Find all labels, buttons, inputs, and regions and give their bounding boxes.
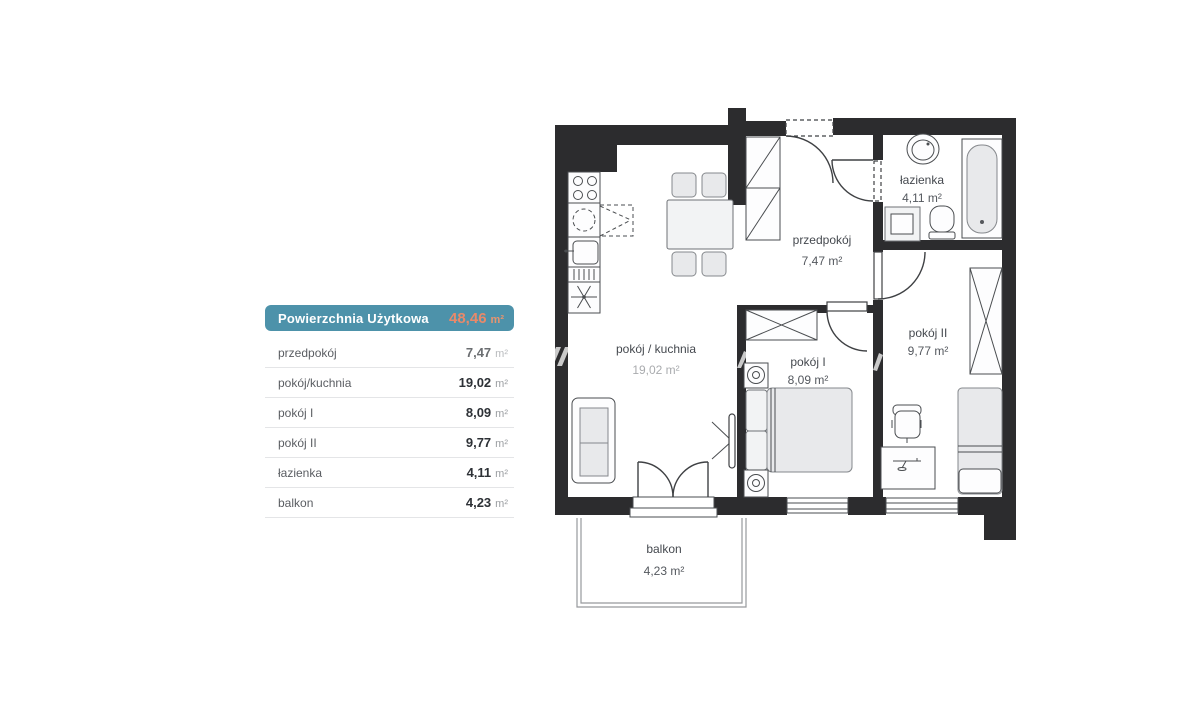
sofa-icon	[572, 398, 615, 483]
chair-icon	[672, 173, 696, 197]
entrance-door	[786, 120, 833, 183]
bathtub-icon	[962, 139, 1002, 238]
room-label: pokój I	[790, 355, 825, 369]
washbasin-icon	[907, 134, 939, 164]
room-area: 4,11 m²	[902, 191, 942, 205]
windows	[630, 497, 958, 517]
sink-icon	[564, 237, 600, 282]
nightstand-icon	[744, 470, 768, 497]
window-room2	[886, 498, 958, 513]
room-area: 9,77 m²	[908, 344, 949, 358]
bathroom	[885, 134, 1002, 241]
pillow	[746, 390, 767, 431]
room-label: łazienka	[900, 173, 944, 187]
room-area: 19,02 m²	[632, 363, 679, 377]
french-balcony-door	[638, 462, 708, 497]
fridge-icon	[568, 282, 600, 313]
room1-door	[827, 302, 867, 351]
room-label: pokój II	[909, 326, 948, 340]
hall-wardrobe-icon	[746, 137, 780, 240]
double-bed-icon	[746, 388, 852, 472]
bathroom-door	[832, 160, 881, 201]
wardrobe-icon	[970, 268, 1002, 374]
dining-table-icon	[667, 173, 733, 276]
floor-plan-page: Powierzchnia Użytkowa 48,46 m² przedpokó…	[0, 0, 1200, 718]
toilet-icon	[929, 206, 955, 239]
window-room1	[787, 498, 848, 513]
chair-icon	[702, 252, 726, 276]
floor-plan-drawing: pokój / kuchnia 19,02 m² przedpokój 7,47…	[0, 0, 1200, 718]
pillow	[746, 431, 767, 470]
room-area: 7,47 m²	[802, 254, 843, 268]
stove-icon	[568, 172, 600, 203]
chair-icon	[702, 173, 726, 197]
room-label: pokój / kuchnia	[616, 342, 696, 356]
chair-icon	[672, 252, 696, 276]
room2-door	[874, 252, 925, 299]
room1	[744, 310, 852, 497]
tv-icon	[712, 414, 735, 468]
desk-chair-icon	[892, 405, 921, 443]
room-label: przedpokój	[793, 233, 852, 247]
room-area: 4,23 m²	[644, 564, 685, 578]
wardrobe-icon	[746, 310, 817, 340]
watermark	[548, 347, 883, 371]
balcony-railing	[577, 518, 746, 607]
washing-machine-icon	[885, 207, 920, 241]
room-area: 8,09 m²	[788, 373, 829, 387]
balcony-door-sill	[630, 497, 717, 517]
room-label: balkon	[646, 542, 681, 556]
single-bed-icon	[958, 388, 1002, 494]
desk-icon	[881, 447, 935, 489]
kitchen	[564, 172, 735, 483]
nightstand-icon	[744, 363, 768, 388]
counter-icon	[568, 203, 633, 237]
room2	[881, 268, 1002, 494]
